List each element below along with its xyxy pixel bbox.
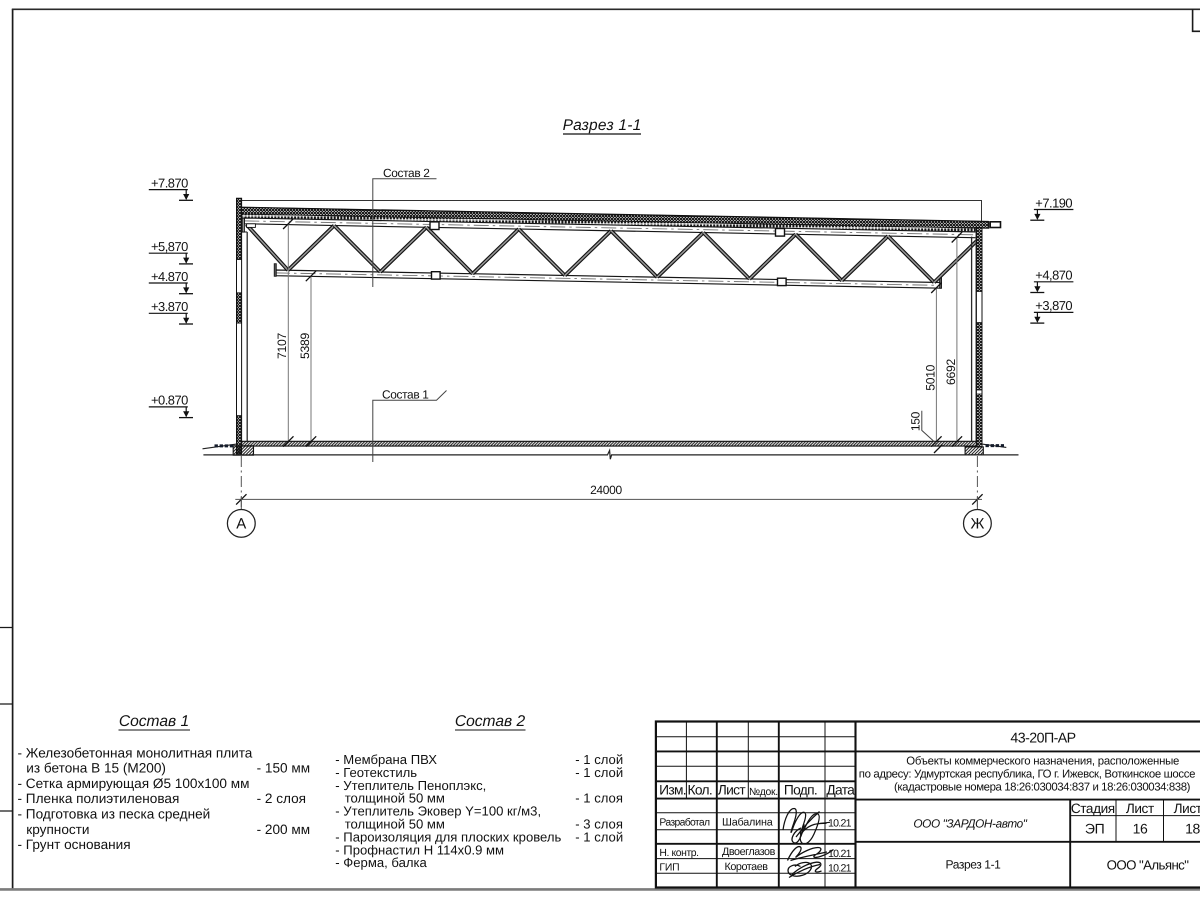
svg-text:24000: 24000 (590, 483, 622, 497)
svg-text:+3.870: +3.870 (151, 299, 188, 314)
svg-text:+0.870: +0.870 (151, 393, 188, 408)
svg-text:крупности: крупности (26, 822, 89, 837)
svg-text:ООО "Альянс": ООО "Альянс" (1107, 858, 1190, 873)
svg-text:- Пленка полиэтиленовая: - Пленка полиэтиленовая (18, 791, 180, 806)
svg-text:+4.870: +4.870 (151, 269, 188, 284)
svg-text:Листов: Листов (1174, 801, 1200, 816)
svg-text:Кол.: Кол. (688, 783, 713, 798)
svg-text:150: 150 (909, 411, 923, 431)
svg-text:ЭП: ЭП (1085, 821, 1104, 837)
svg-text:№док.: №док. (749, 787, 778, 798)
svg-text:Состав 1: Состав 1 (119, 713, 189, 730)
svg-text:10.21: 10.21 (828, 848, 852, 860)
svg-text:Коротаев: Коротаев (725, 861, 769, 873)
svg-text:Объекты коммерческого назначен: Объекты коммерческого назначения, распол… (906, 755, 1179, 767)
svg-text:- Сетка армирующая Ø5 100х100: - Сетка армирующая Ø5 100х100 мм (18, 776, 250, 791)
svg-text:ГИП: ГИП (659, 862, 679, 873)
svg-text:по адресу: Удмуртская республи: по адресу: Удмуртская республика, ГО г. … (859, 769, 1195, 781)
svg-text:Изм.: Изм. (659, 783, 686, 798)
svg-text:Разрез 1-1: Разрез 1-1 (563, 117, 642, 134)
svg-text:Лист: Лист (718, 783, 747, 798)
svg-text:Состав 2: Состав 2 (383, 166, 430, 180)
svg-text:+7.190: +7.190 (1035, 195, 1072, 210)
svg-text:10.21: 10.21 (828, 818, 852, 830)
svg-text:Подп.: Подп. (784, 783, 817, 798)
svg-text:5389: 5389 (298, 333, 312, 359)
svg-text:- 200 мм: - 200 мм (257, 822, 310, 837)
svg-text:16: 16 (1133, 821, 1148, 837)
svg-text:- 150 мм: - 150 мм (257, 761, 310, 776)
svg-text:- 1 слой: - 1 слой (575, 765, 623, 780)
svg-text:+7.870: +7.870 (151, 175, 188, 190)
svg-text:43-20П-АР: 43-20П-АР (1010, 731, 1075, 747)
svg-text:10.21: 10.21 (828, 863, 852, 875)
svg-text:+4,870: +4,870 (1035, 268, 1072, 283)
svg-text:- 1 слоя: - 1 слоя (575, 791, 623, 806)
svg-text:- 1 слой: - 1 слой (575, 829, 623, 844)
svg-text:Стадия: Стадия (1071, 801, 1115, 816)
svg-text:Состав 2: Состав 2 (455, 713, 526, 730)
svg-text:Н. контр.: Н. контр. (659, 848, 698, 859)
svg-text:Разрез 1-1: Разрез 1-1 (946, 857, 1002, 871)
svg-text:из бетона В 15 (М200): из бетона В 15 (М200) (26, 761, 166, 776)
svg-text:- 2 слоя: - 2 слоя (257, 791, 306, 806)
svg-text:(кадастровые номера 18:26:0300: (кадастровые номера 18:26:030034:837 и 1… (894, 782, 1191, 794)
svg-text:А: А (236, 516, 246, 533)
svg-text:+3,870: +3,870 (1035, 298, 1072, 313)
svg-text:- Грунт основания: - Грунт основания (18, 837, 131, 852)
svg-text:6692: 6692 (944, 359, 958, 385)
svg-text:Шабалина: Шабалина (722, 816, 773, 828)
svg-text:Двоеглазов: Двоеглазов (722, 846, 776, 858)
svg-text:ООО "ЗАРДОН-авто": ООО "ЗАРДОН-авто" (913, 817, 1027, 831)
svg-text:7107: 7107 (275, 333, 289, 359)
svg-text:- Ферма, балка: - Ферма, балка (335, 855, 427, 870)
svg-text:+5,870: +5,870 (151, 239, 188, 254)
svg-text:18: 18 (1185, 821, 1200, 837)
svg-text:Лист: Лист (1126, 801, 1154, 816)
svg-text:Разработал: Разработал (659, 818, 710, 829)
svg-text:- Подготовка из песка средней: - Подготовка из песка средней (18, 807, 211, 822)
svg-text:5010: 5010 (923, 364, 937, 390)
svg-text:Состав 1: Состав 1 (382, 388, 429, 402)
svg-text:- Железобетонная монолитная п: - Железобетонная монолитная плита (18, 745, 253, 760)
svg-text:Дата: Дата (826, 783, 855, 798)
svg-text:Ж: Ж (970, 516, 984, 533)
